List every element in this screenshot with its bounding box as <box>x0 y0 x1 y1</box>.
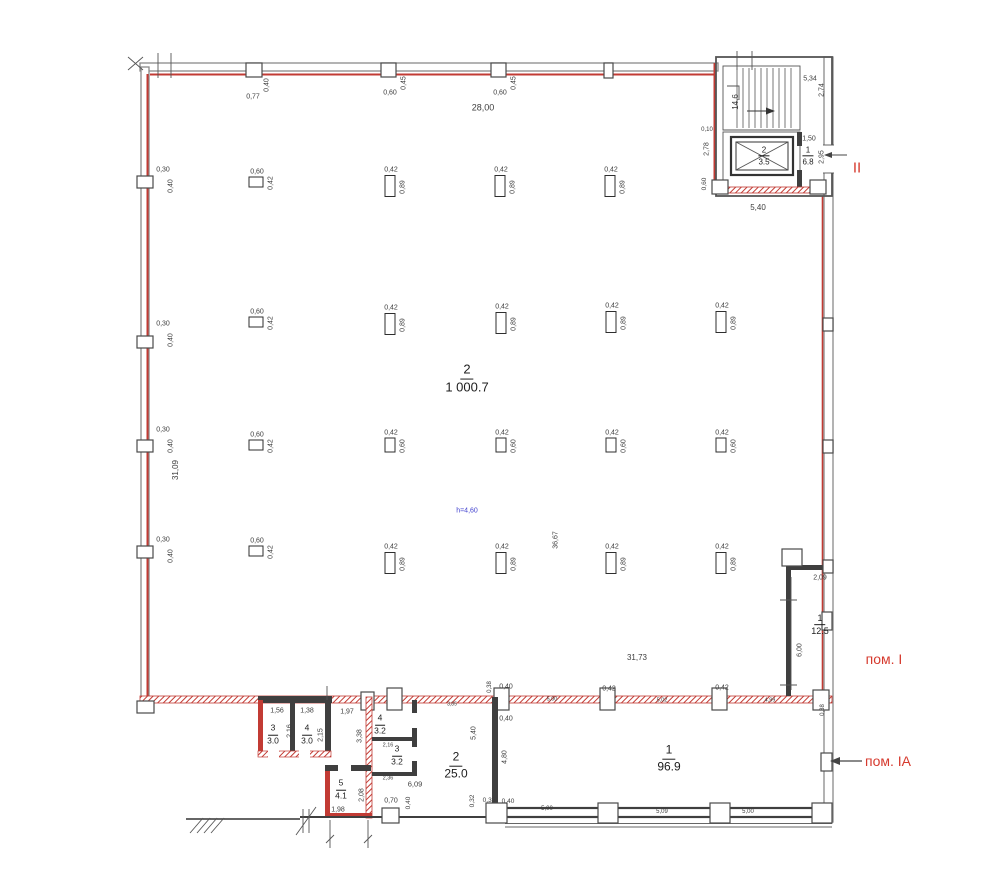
dimension-label: 0,40 <box>168 179 175 193</box>
column <box>249 177 264 188</box>
zone-label: II <box>853 161 861 176</box>
column-dim-side: 0,89 <box>730 316 737 330</box>
room-number: 3 <box>268 724 279 736</box>
dimension-label: 6,09 <box>408 780 423 788</box>
column <box>496 438 507 453</box>
dimension-label: 0,60 <box>383 90 397 97</box>
column-dim-top: 0,42 <box>604 167 618 174</box>
column <box>385 438 396 453</box>
room-number: 2 <box>460 363 473 380</box>
column-dim-top: 0,42 <box>384 544 398 551</box>
column-dim-top: 0,42 <box>715 303 729 310</box>
dimension-label: 4,80 <box>502 750 509 764</box>
dimension-label: 28,00 <box>472 104 495 113</box>
column <box>606 552 617 574</box>
column-dim-side: 0,89 <box>399 557 406 571</box>
dimension-label: 1,97 <box>340 709 354 716</box>
dimension-label: 0,45 <box>401 76 408 90</box>
column-dim-top: 0,42 <box>495 304 509 311</box>
room-label: 16.8 <box>802 145 813 166</box>
dimension-label: 1,50 <box>802 136 816 143</box>
column-dim-side: 0,89 <box>509 180 516 194</box>
dimension-label: 0,30 <box>156 167 170 174</box>
floor-plan-canvas: 0,770,400,600,450,600,4528,005,342,7414,… <box>0 0 1000 884</box>
dimension-label: 6,00 <box>797 643 804 657</box>
dimension-label: 5,02 <box>657 698 668 704</box>
column <box>606 438 617 453</box>
room-number: 1 <box>803 145 813 156</box>
room-label: 43.2 <box>374 714 386 737</box>
column-dim-side: 0,89 <box>510 317 517 331</box>
dimension-label: 14,6 <box>732 94 740 110</box>
dimension-label: 0,32 <box>470 795 477 808</box>
column-dim-side: 0,42 <box>267 439 274 453</box>
column-dim-side: 0,42 <box>267 545 274 559</box>
dimension-label: 2,95 <box>819 150 826 164</box>
height-note: h=4,60 <box>456 508 478 515</box>
column-dim-side: 0,89 <box>620 557 627 571</box>
column-dim-side: 0,89 <box>399 180 406 194</box>
column-dim-side: 0,60 <box>399 439 406 453</box>
dimension-label: 0,40 <box>406 797 413 810</box>
room-number: 1 <box>663 744 676 760</box>
room-label: 43.0 <box>301 724 313 747</box>
room-label: 225.0 <box>444 751 467 782</box>
dimension-label: 1,98 <box>331 807 345 814</box>
dimension-label: 0,38 <box>820 704 826 716</box>
room-label: 33.0 <box>267 724 279 747</box>
room-number: 2 <box>450 751 463 767</box>
room-number: 2 <box>759 145 769 156</box>
room-area: 3.2 <box>374 726 386 737</box>
dimension-label: 0,30 <box>156 321 170 328</box>
dimension-label: 0,77 <box>246 94 260 101</box>
column-dim-side: 0,60 <box>510 439 517 453</box>
dimension-label: 2,78 <box>704 142 711 156</box>
dimension-label: 5,09 <box>656 809 668 815</box>
dimension-label: 1,38 <box>300 708 314 715</box>
column <box>716 311 727 333</box>
dimension-label: 1,56 <box>270 708 284 715</box>
dimension-label: 0,40 <box>168 549 175 563</box>
room-area: 96.9 <box>657 760 680 775</box>
column-dim-side: 0,89 <box>510 557 517 571</box>
column <box>385 313 396 335</box>
room-number: 3 <box>392 745 403 757</box>
room-area: 3.0 <box>267 736 279 747</box>
column-dim-top: 0,60 <box>250 168 264 175</box>
dimension-label: 0,35 <box>483 798 496 805</box>
zone-label: пом. I <box>866 652 903 666</box>
column <box>249 317 264 328</box>
column-dim-side: 0,60 <box>620 439 627 453</box>
dimension-label: 0,40 <box>499 684 513 691</box>
column-dim-side: 0,89 <box>730 557 737 571</box>
room-area: 12.5 <box>811 626 829 637</box>
room-area: 3.5 <box>758 157 769 167</box>
room-label: 21 000.7 <box>445 363 488 396</box>
dimension-label: 0,70 <box>384 798 398 805</box>
column-dim-top: 0,42 <box>715 544 729 551</box>
dimension-label: 2,08 <box>359 788 366 802</box>
column <box>716 438 727 453</box>
dimension-label: 0,40 <box>499 716 513 723</box>
dimension-label: 0,60 <box>493 90 507 97</box>
zone-label: пом. IА <box>865 754 911 768</box>
room-label: 112.5 <box>811 613 829 637</box>
room-number: 4 <box>302 724 313 736</box>
column-dim-top: 0,42 <box>605 544 619 551</box>
dimension-label: 2,36 <box>383 776 394 782</box>
dimension-label: 31,09 <box>172 460 180 480</box>
dimension-label: 31,73 <box>627 654 647 662</box>
column <box>496 552 507 574</box>
room-area: 25.0 <box>444 767 467 782</box>
dimension-label: 3,38 <box>357 729 364 743</box>
column-dim-top: 0,42 <box>715 429 729 436</box>
room-label: 23.5 <box>758 145 769 166</box>
dimension-label: 0,40 <box>168 333 175 347</box>
dimension-label: 0,40 <box>168 439 175 453</box>
column <box>385 552 396 574</box>
room-area: 3.2 <box>391 757 403 768</box>
dimension-label: 0,40 <box>264 78 271 92</box>
column-dim-top: 0,42 <box>384 305 398 312</box>
room-number: 5 <box>336 779 347 791</box>
dimension-label: 0,40 <box>502 799 515 806</box>
column <box>249 440 264 451</box>
room-area: 6.8 <box>802 157 813 167</box>
dimension-label: 0,45 <box>511 76 518 90</box>
column <box>495 175 506 197</box>
column <box>385 175 396 197</box>
dimension-label: 5,00 <box>742 809 754 815</box>
dimension-label: 0,30 <box>156 427 170 434</box>
room-label: 196.9 <box>657 744 680 775</box>
dimension-label: 3,85 <box>447 703 457 708</box>
column <box>496 312 507 334</box>
column-dim-side: 0,89 <box>620 316 627 330</box>
column-dim-top: 0,60 <box>250 537 264 544</box>
room-number: 4 <box>375 714 386 726</box>
column-dim-top: 0,42 <box>494 167 508 174</box>
room-area: 3.0 <box>301 736 313 747</box>
column-dim-top: 0,60 <box>250 431 264 438</box>
column-dim-top: 0,42 <box>605 429 619 436</box>
dimension-label: 36,67 <box>553 531 560 549</box>
column <box>606 311 617 333</box>
dimension-label: 0,10 <box>701 127 713 133</box>
column-dim-top: 0,42 <box>495 429 509 436</box>
room-area: 4.1 <box>335 791 347 802</box>
column <box>249 546 264 557</box>
dimension-label: 0,30 <box>156 537 170 544</box>
room-label: 33.2 <box>391 745 403 768</box>
column-dim-side: 0,42 <box>267 176 274 190</box>
column-dim-side: 0,42 <box>267 316 274 330</box>
dimension-label: 0,38 <box>487 681 493 693</box>
column-dim-top: 0,42 <box>605 303 619 310</box>
dimension-label: 5,00 <box>547 697 558 703</box>
dimension-label: 5,40 <box>471 726 478 740</box>
column-dim-side: 0,89 <box>619 180 626 194</box>
column-dim-top: 0,42 <box>495 544 509 551</box>
dimension-label: 2,16 <box>287 724 294 738</box>
dimension-label: 0,42 <box>715 685 729 692</box>
dimension-label: 0,42 <box>602 686 616 693</box>
room-number: 1 <box>814 613 825 625</box>
dimension-label: 5,34 <box>803 76 817 83</box>
room-area: 1 000.7 <box>445 380 488 396</box>
column <box>716 552 727 574</box>
labels-layer: 0,770,400,600,450,600,4528,005,342,7414,… <box>0 0 1000 884</box>
column <box>605 175 616 197</box>
dimension-label: 5,00 <box>541 806 553 812</box>
dimension-label: 0,60 <box>702 178 709 191</box>
column-dim-side: 0,60 <box>730 439 737 453</box>
dimension-label: 4,99 <box>765 698 776 704</box>
column-dim-top: 0,60 <box>250 308 264 315</box>
column-dim-top: 0,42 <box>384 167 398 174</box>
column-dim-top: 0,42 <box>384 429 398 436</box>
dimension-label: 2,09 <box>813 575 827 582</box>
dimension-label: 2,74 <box>819 83 826 97</box>
dimension-label: 2,15 <box>318 728 325 742</box>
room-label: 54.1 <box>335 779 347 802</box>
column-dim-side: 0,89 <box>399 318 406 332</box>
dimension-label: 5,40 <box>750 204 766 212</box>
